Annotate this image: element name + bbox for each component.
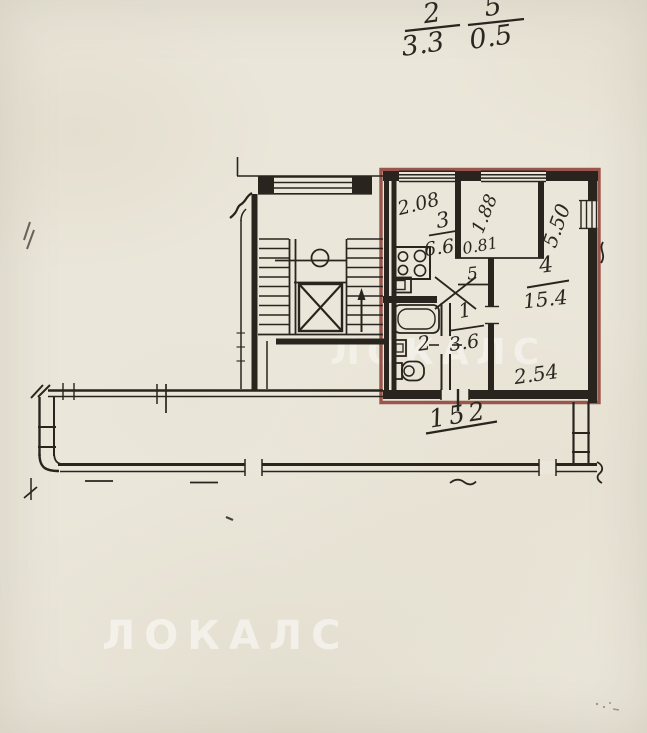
break-mark	[601, 242, 603, 263]
room-hall-area: 3.6	[448, 330, 481, 356]
note2-denominator: 0.5	[467, 19, 514, 56]
dim-living-width: 2.54	[511, 359, 559, 389]
floorplan-drawing: 2 3.3 5 0.5	[0, 0, 647, 733]
room-living-label: 4 15.4	[522, 252, 569, 313]
room-hall-label: 1 3.6	[448, 297, 484, 356]
room-living-number: 4	[536, 252, 554, 279]
room-kitchen-label: 3 6.6	[423, 207, 459, 261]
note1-denominator: 3.3	[399, 26, 446, 63]
break-mark	[31, 385, 50, 398]
room-bath-number: 2	[415, 330, 432, 356]
dim-niche-width: 0.81	[461, 233, 499, 258]
room-living-area: 15.4	[522, 285, 569, 314]
toilet-icon	[393, 362, 424, 381]
corridor-walls	[24, 383, 602, 500]
elevator-icon	[294, 283, 346, 332]
room-kitchen-number: 3	[434, 207, 451, 233]
area-note-2: 5 0.5	[467, 0, 524, 56]
window-icon	[399, 171, 455, 182]
floorplan-scan: ЛОКАЛС ЛОКАЛС 2 3.3 5 0.5	[0, 0, 647, 733]
stairs-icon	[258, 239, 383, 335]
window-icon	[579, 200, 598, 229]
room-hall-number: 1	[456, 297, 473, 323]
column-icon	[312, 250, 329, 267]
area-note-1: 2 3.3	[399, 0, 460, 63]
window-icon	[481, 171, 546, 182]
dim-niche-height: 1.88	[468, 191, 502, 236]
bathtub-icon	[394, 305, 439, 333]
break-mark	[597, 462, 602, 483]
room-kitchen-area: 6.6	[423, 235, 456, 261]
stairwell	[230, 157, 385, 390]
room-closet-number: 5	[466, 264, 479, 285]
up-arrow-icon	[358, 288, 366, 332]
break-mark	[230, 193, 252, 218]
